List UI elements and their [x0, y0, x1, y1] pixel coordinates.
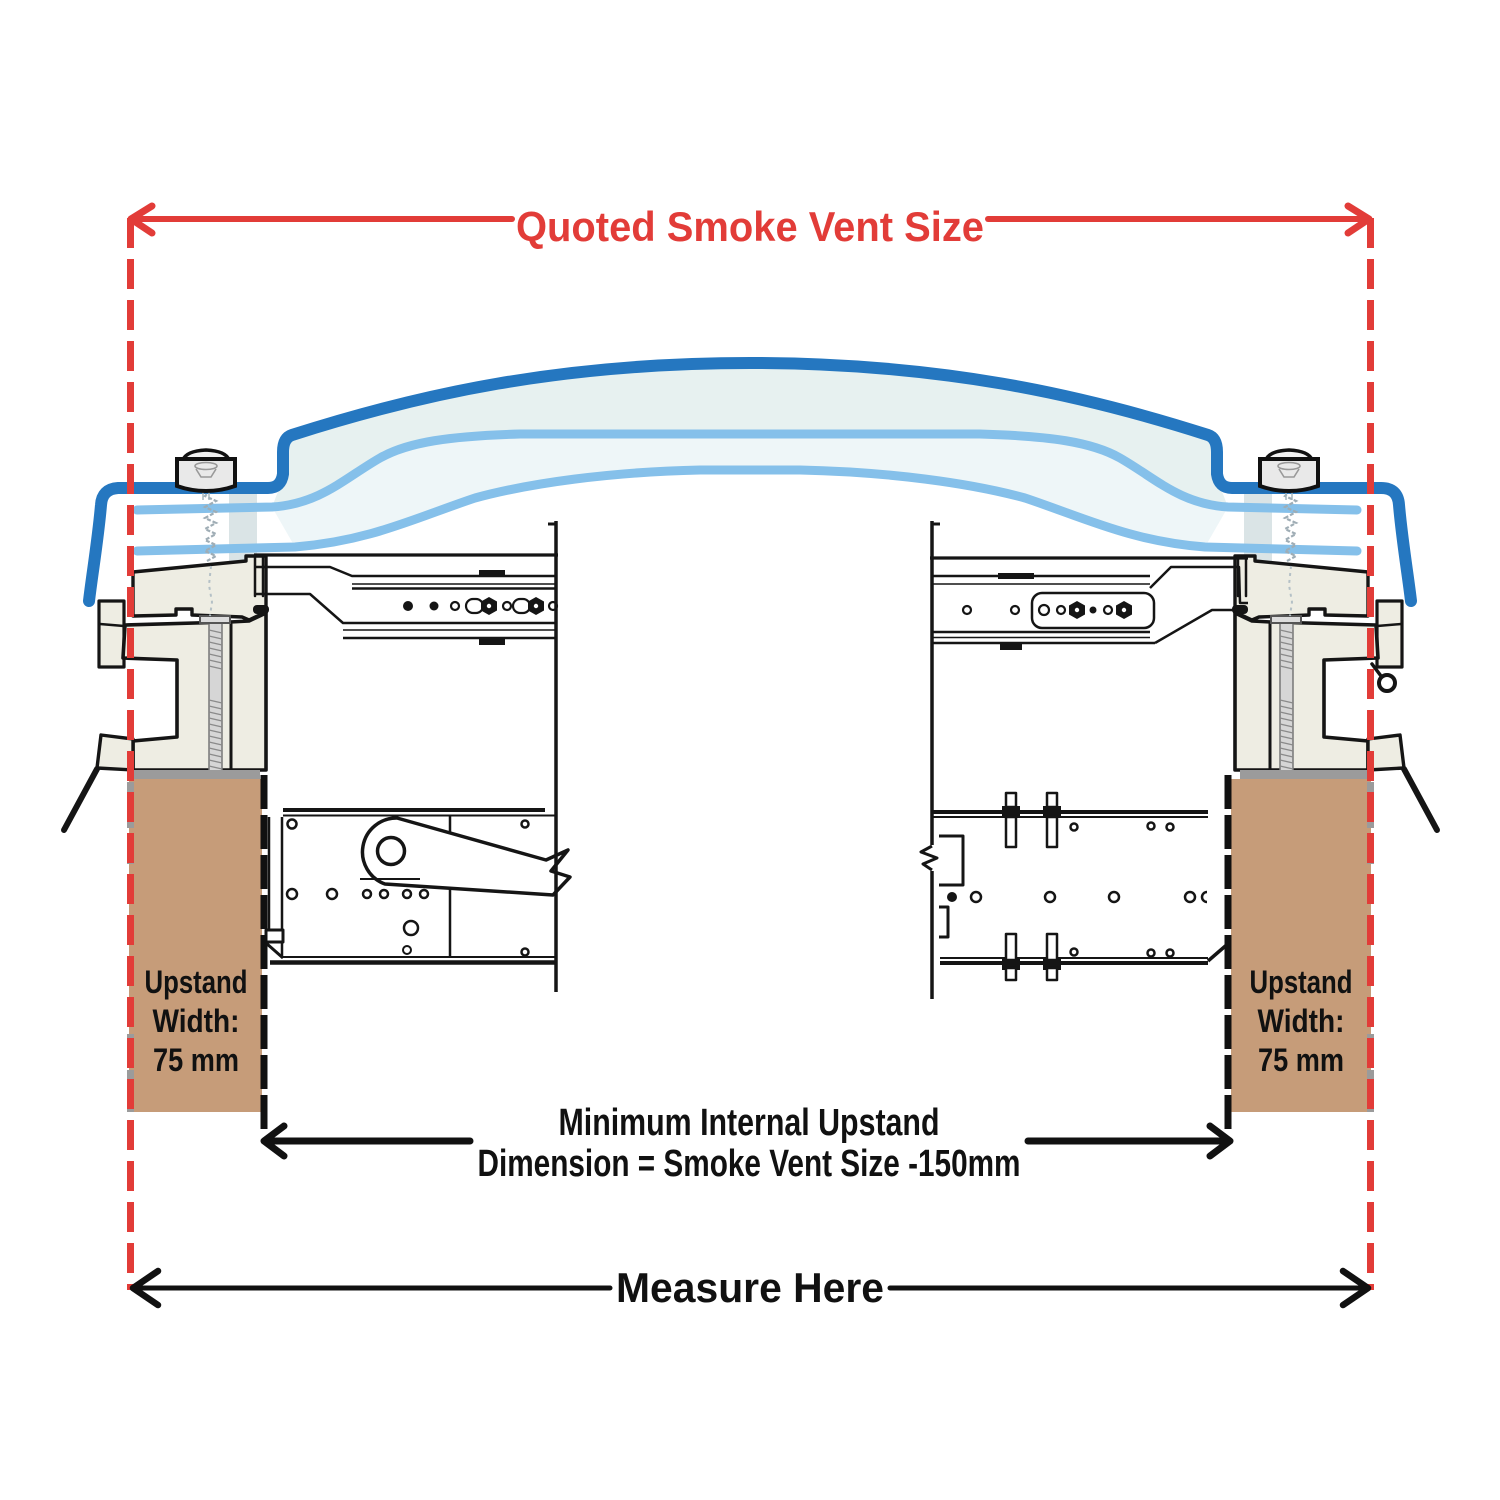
svg-text:Upstand: Upstand — [145, 964, 248, 1000]
svg-text:Width:: Width: — [153, 1003, 240, 1039]
svg-text:Upstand: Upstand — [1250, 964, 1353, 1000]
svg-text:75 mm: 75 mm — [153, 1042, 239, 1078]
svg-text:75 mm: 75 mm — [1258, 1042, 1344, 1078]
svg-text:Minimum Internal Upstand: Minimum Internal Upstand — [559, 1102, 940, 1144]
svg-text:Quoted Smoke Vent Size: Quoted Smoke Vent Size — [516, 203, 984, 250]
svg-text:Measure Here: Measure Here — [616, 1264, 884, 1311]
svg-text:Width:: Width: — [1258, 1003, 1345, 1039]
svg-text:Dimension = Smoke Vent Size -1: Dimension = Smoke Vent Size -150mm — [478, 1143, 1021, 1185]
